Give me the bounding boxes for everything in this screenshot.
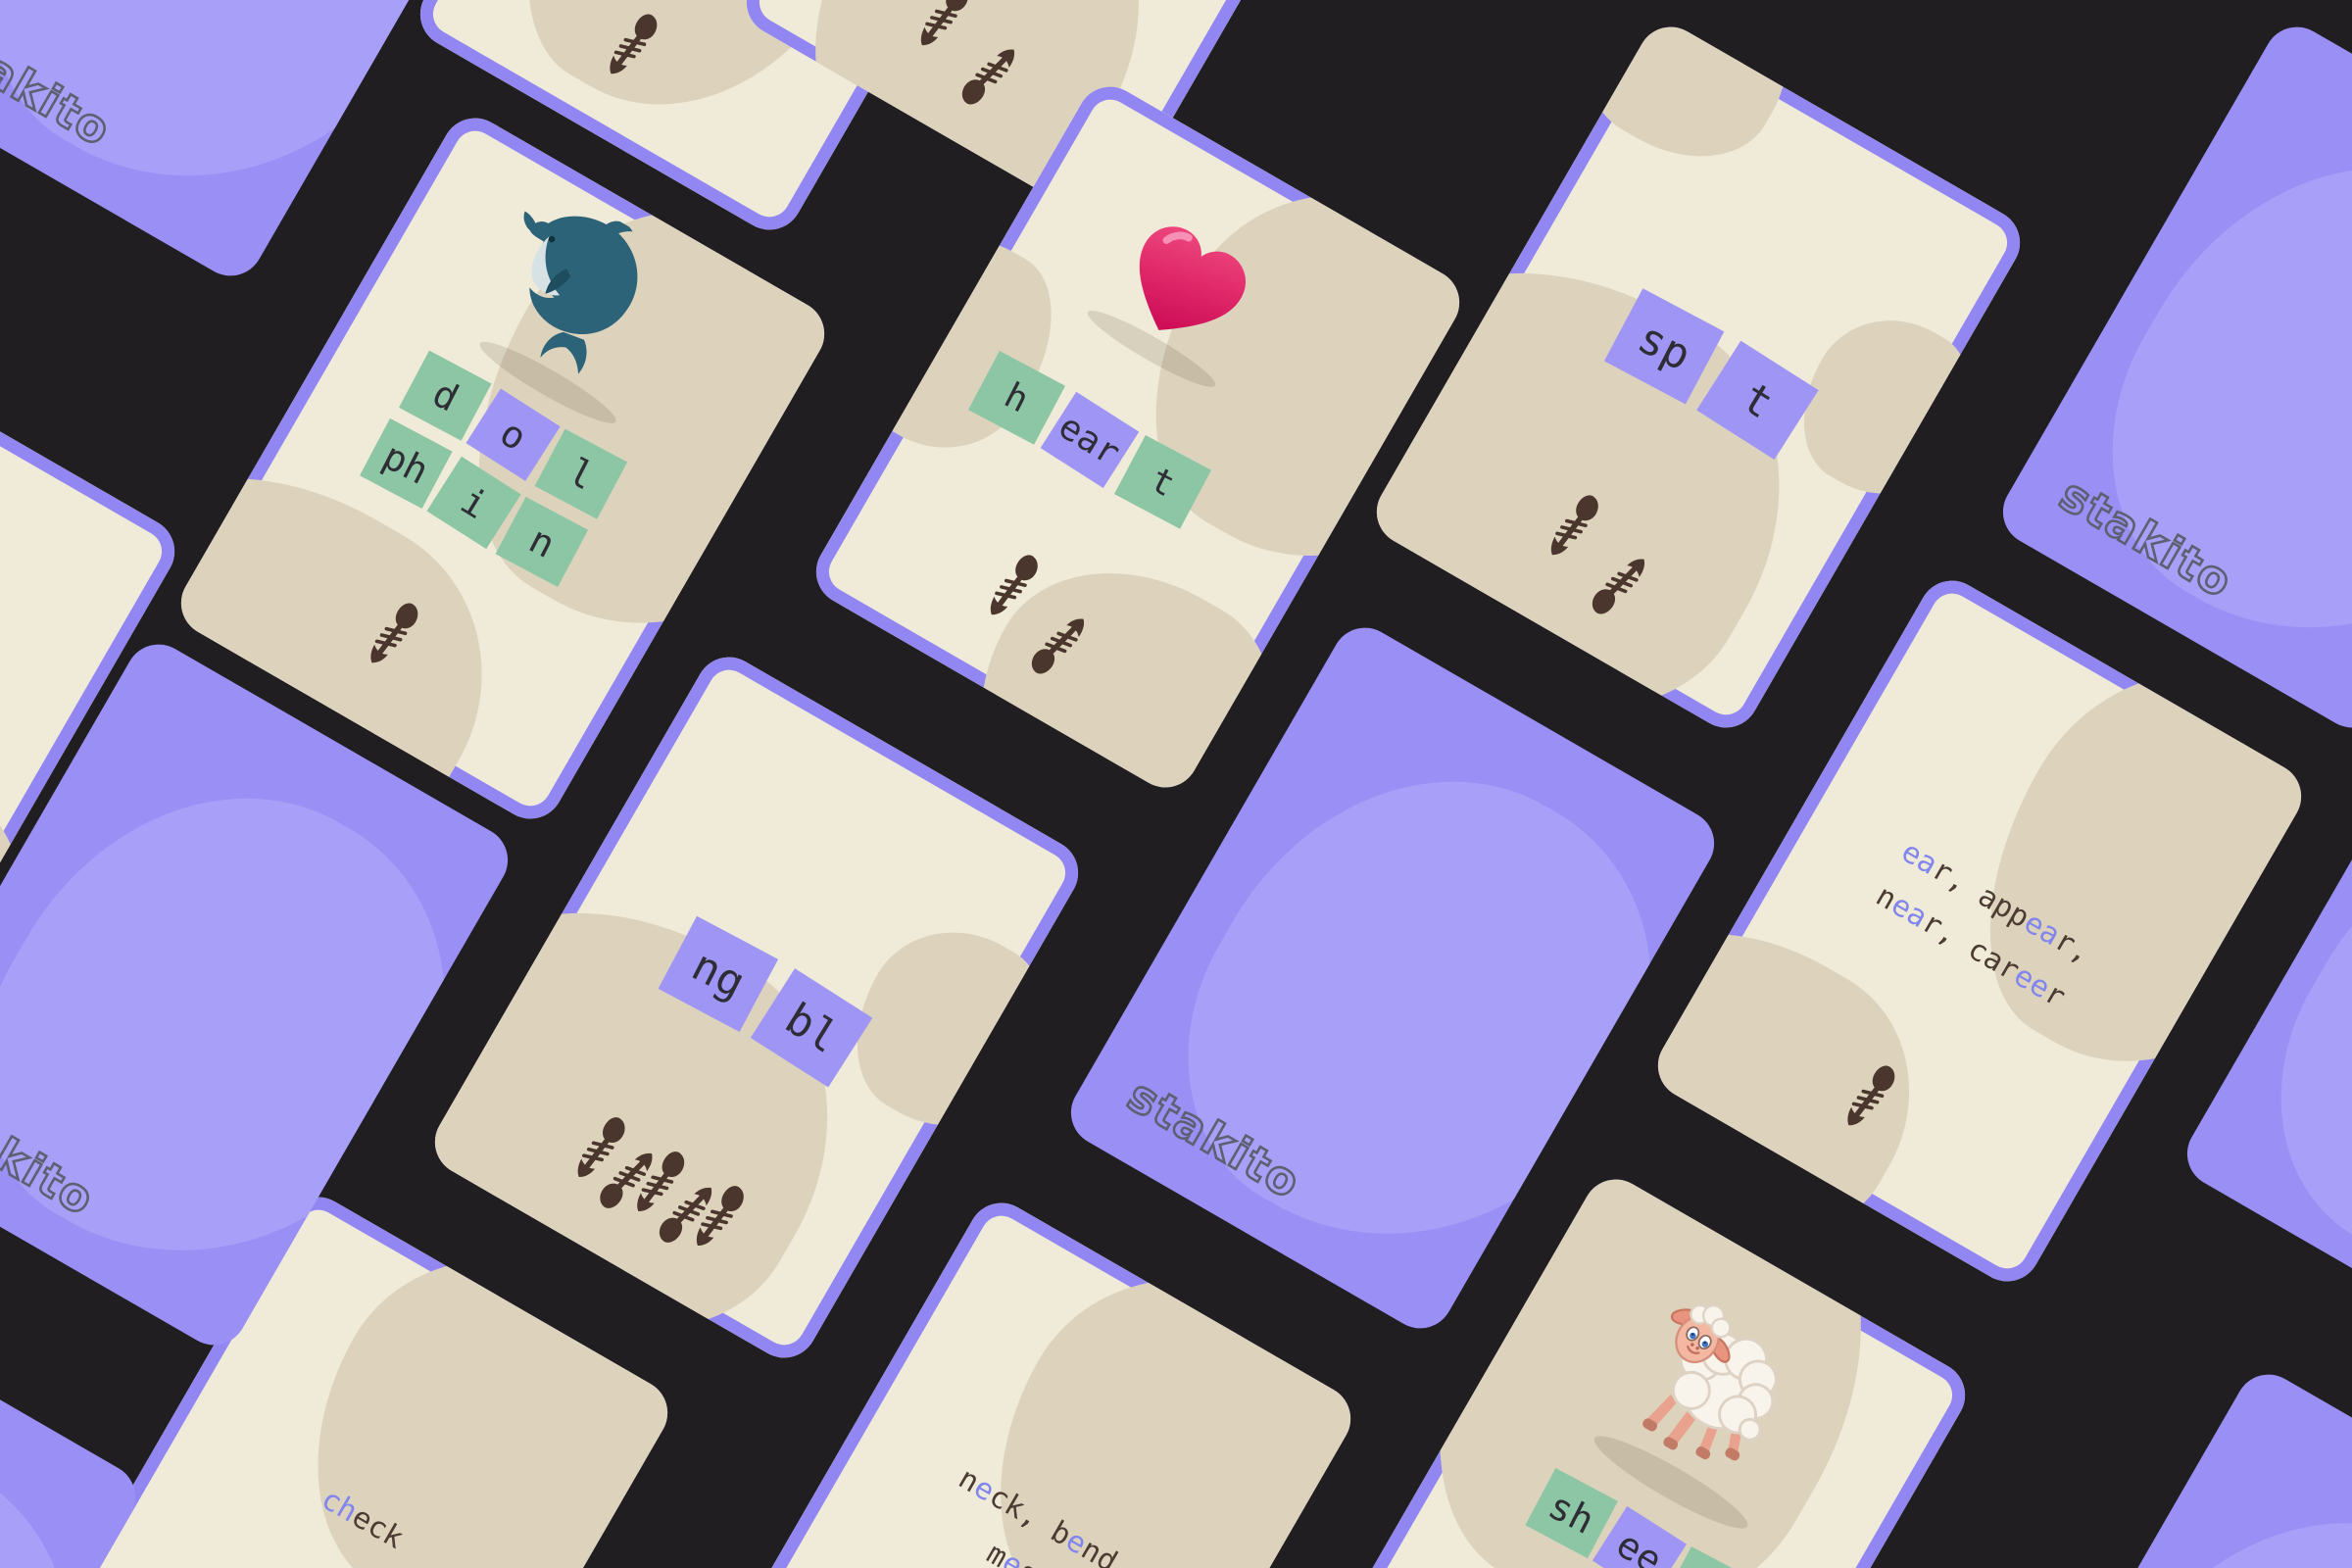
blob-decoration bbox=[2021, 1442, 2352, 1568]
card-back-bottom-left bbox=[0, 1269, 148, 1568]
card-collage-canvas: check stakito stakito dolphin bbox=[0, 0, 2352, 1568]
blob-decoration bbox=[930, 520, 1322, 800]
card-back-bottom-right bbox=[1962, 1362, 2352, 1568]
blob-decoration bbox=[1549, 15, 1821, 190]
blob-decoration bbox=[2044, 85, 2352, 720]
blob-decoration bbox=[422, 835, 898, 1370]
blob-decoration bbox=[0, 716, 519, 1343]
